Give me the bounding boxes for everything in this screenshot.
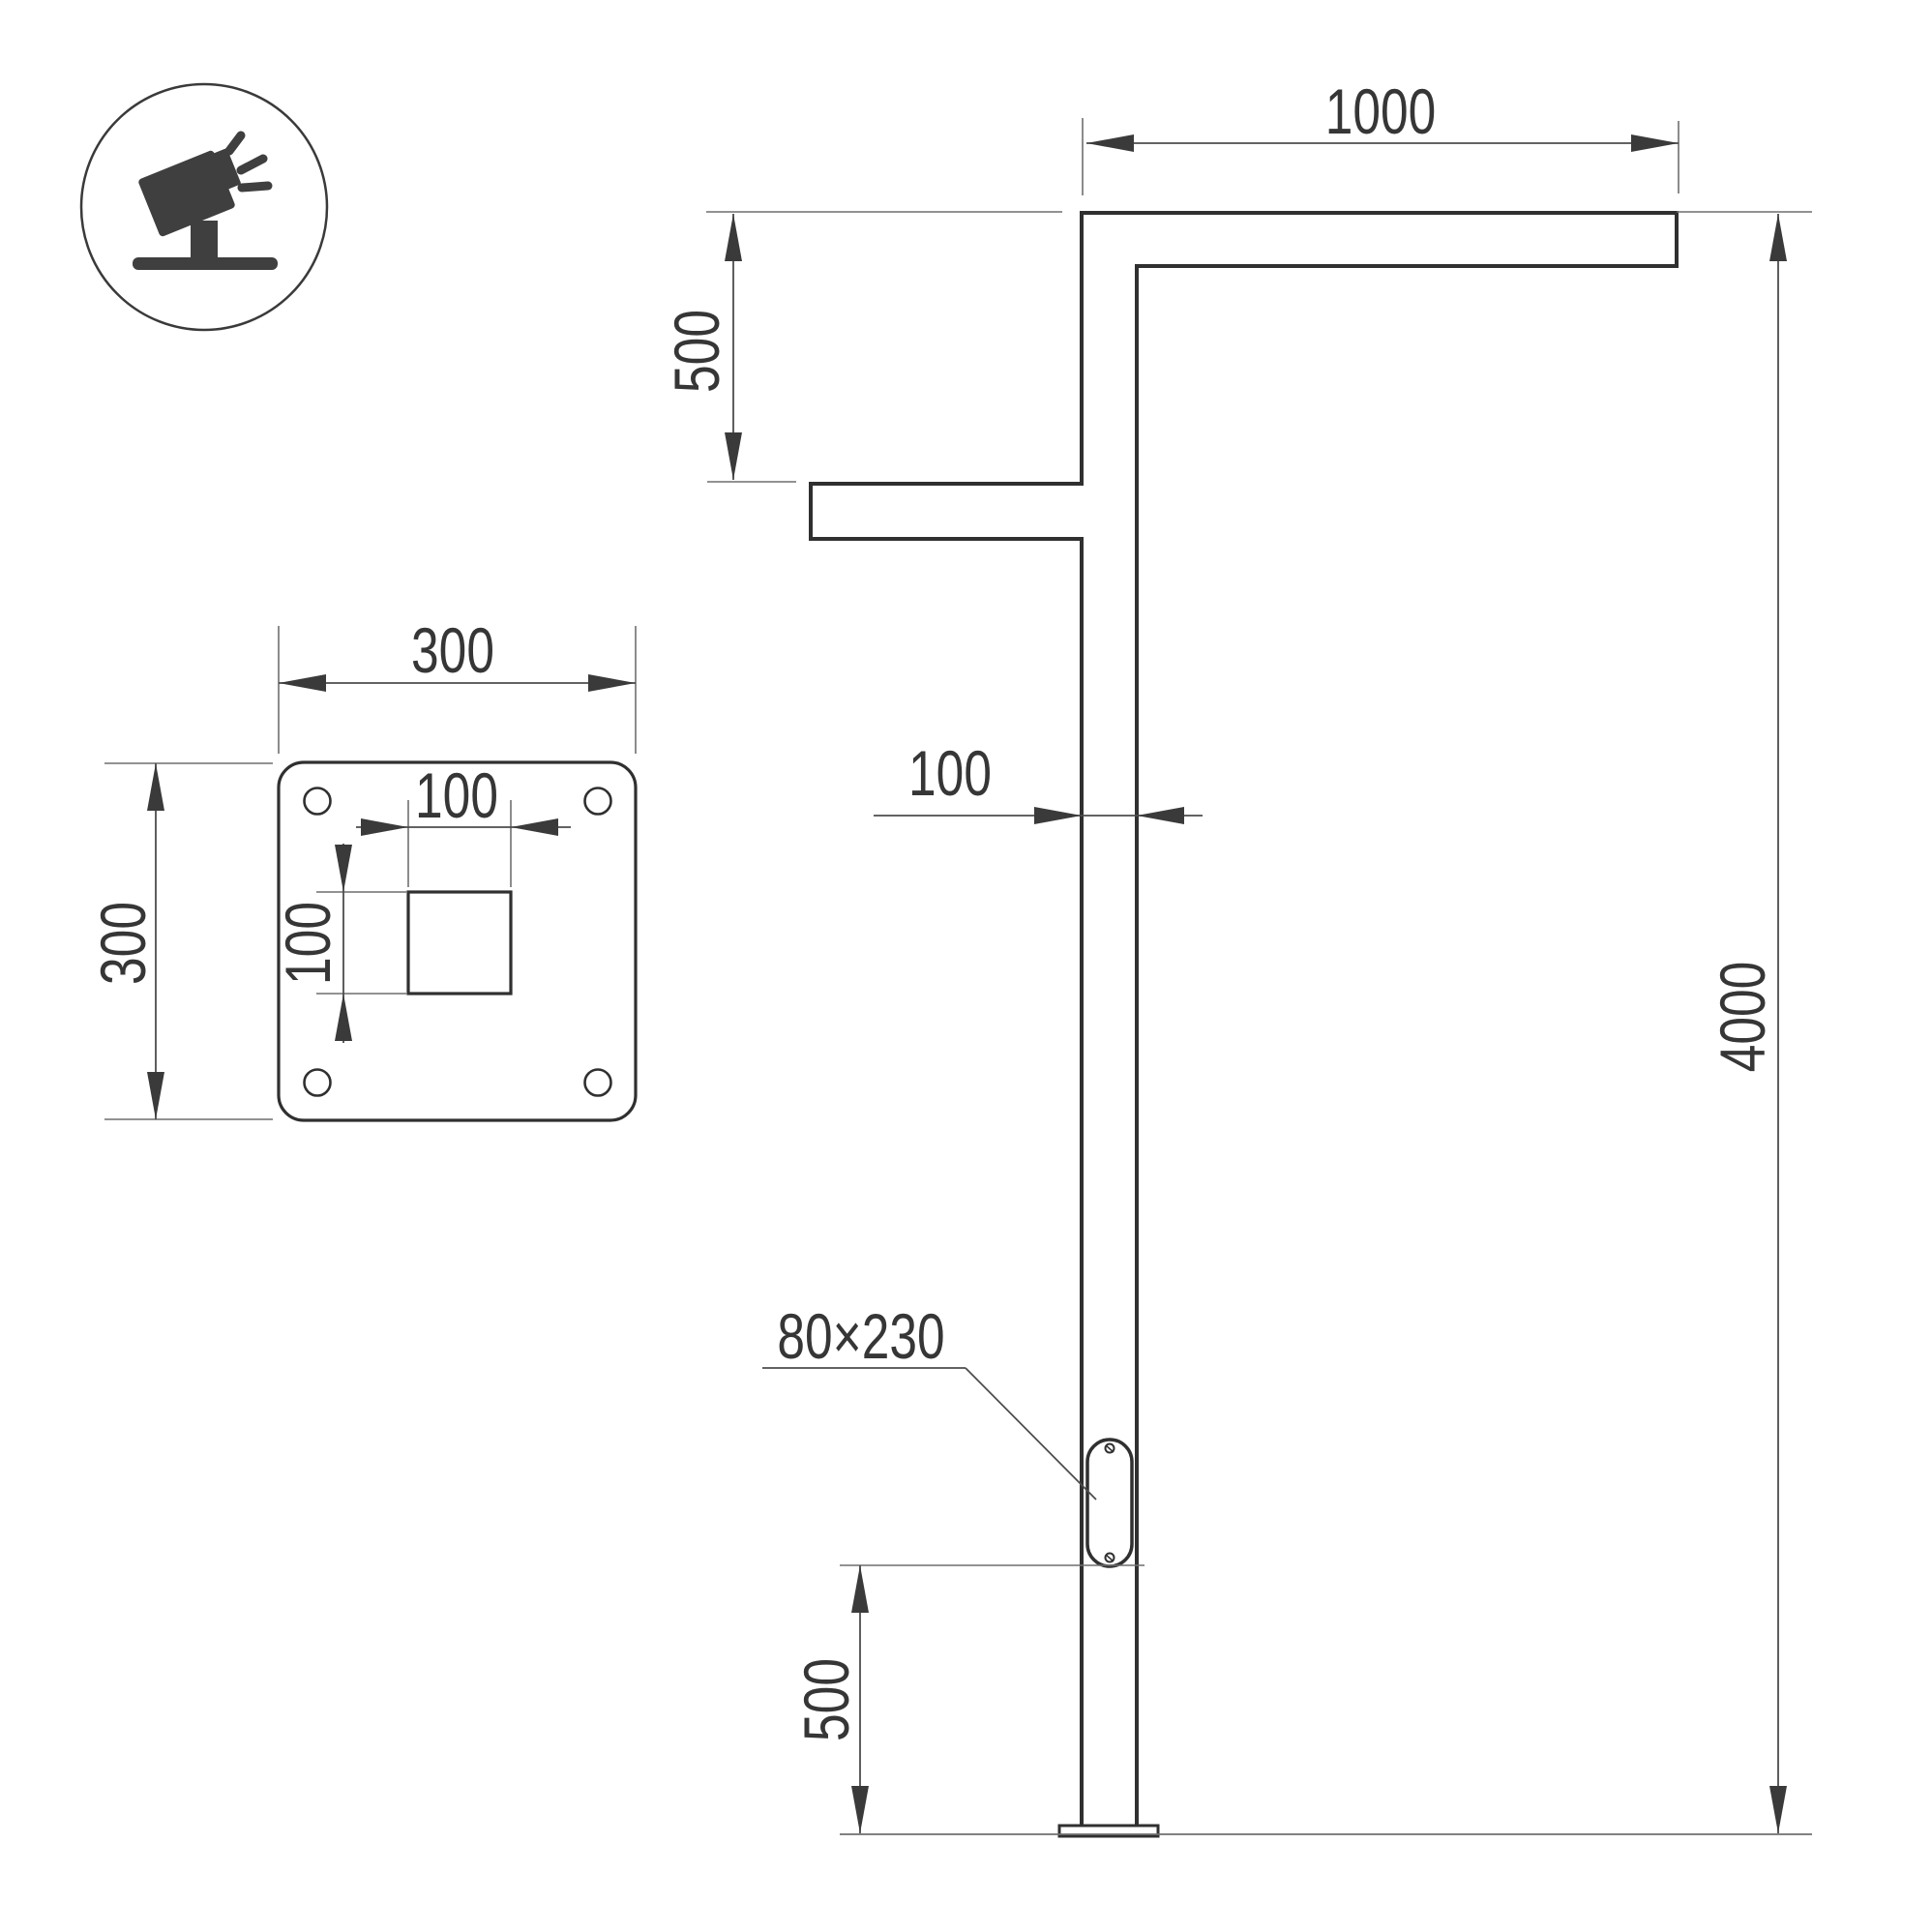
floodlight-icon xyxy=(81,84,327,330)
technical-drawing-page: 1000 500 100 4000 80×230 500 300 300 100… xyxy=(0,0,1932,1932)
dim-pocket-width-label: 100 xyxy=(415,763,498,827)
dim-arm-length-label: 1000 xyxy=(1325,79,1437,143)
floodlight-post xyxy=(191,221,218,263)
dim-plate-height-label: 300 xyxy=(91,902,155,985)
dim-pole-width-label: 100 xyxy=(908,741,992,805)
dim-door-height-label: 500 xyxy=(794,1658,858,1741)
pole-pocket-square xyxy=(408,892,511,994)
dim-arm-drop-label: 500 xyxy=(665,310,728,393)
floodlight-base xyxy=(133,257,278,270)
pole-outline xyxy=(811,213,1677,1826)
dim-pocket-height-label: 100 xyxy=(276,902,340,985)
access-door xyxy=(1087,1440,1132,1566)
door-leader-diagonal xyxy=(966,1368,1096,1500)
dim-pole-height-label: 4000 xyxy=(1710,962,1774,1073)
access-door-outline xyxy=(1087,1440,1132,1566)
door-size-label: 80×230 xyxy=(777,1304,944,1368)
dim-plate-width-label: 300 xyxy=(411,618,494,682)
